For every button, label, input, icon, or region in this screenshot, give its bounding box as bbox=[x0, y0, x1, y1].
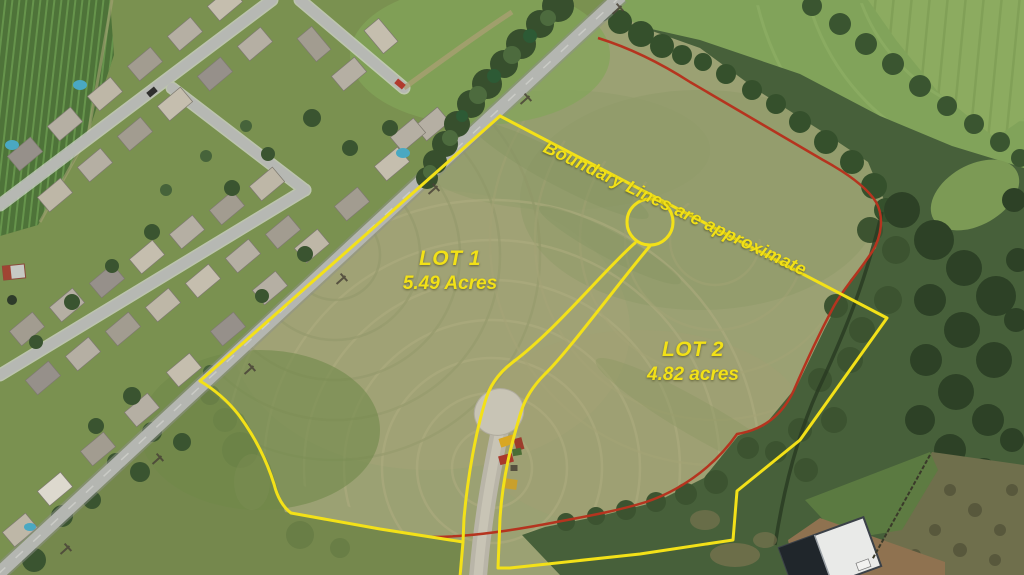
lot2-acreage: 4.82 acres bbox=[628, 363, 758, 387]
trampoline bbox=[7, 295, 17, 305]
lot1-name: LOT 1 bbox=[385, 246, 515, 272]
aerial-photo: Boundary Lines are approximate LOT 1 5.4… bbox=[0, 0, 1024, 575]
lot1-acreage: 5.49 Acres bbox=[385, 272, 515, 296]
lot1-label: LOT 1 5.49 Acres bbox=[385, 246, 515, 296]
lot2-name: LOT 2 bbox=[628, 337, 758, 363]
lot2-label: LOT 2 4.82 acres bbox=[628, 337, 758, 387]
shed bbox=[2, 264, 25, 280]
